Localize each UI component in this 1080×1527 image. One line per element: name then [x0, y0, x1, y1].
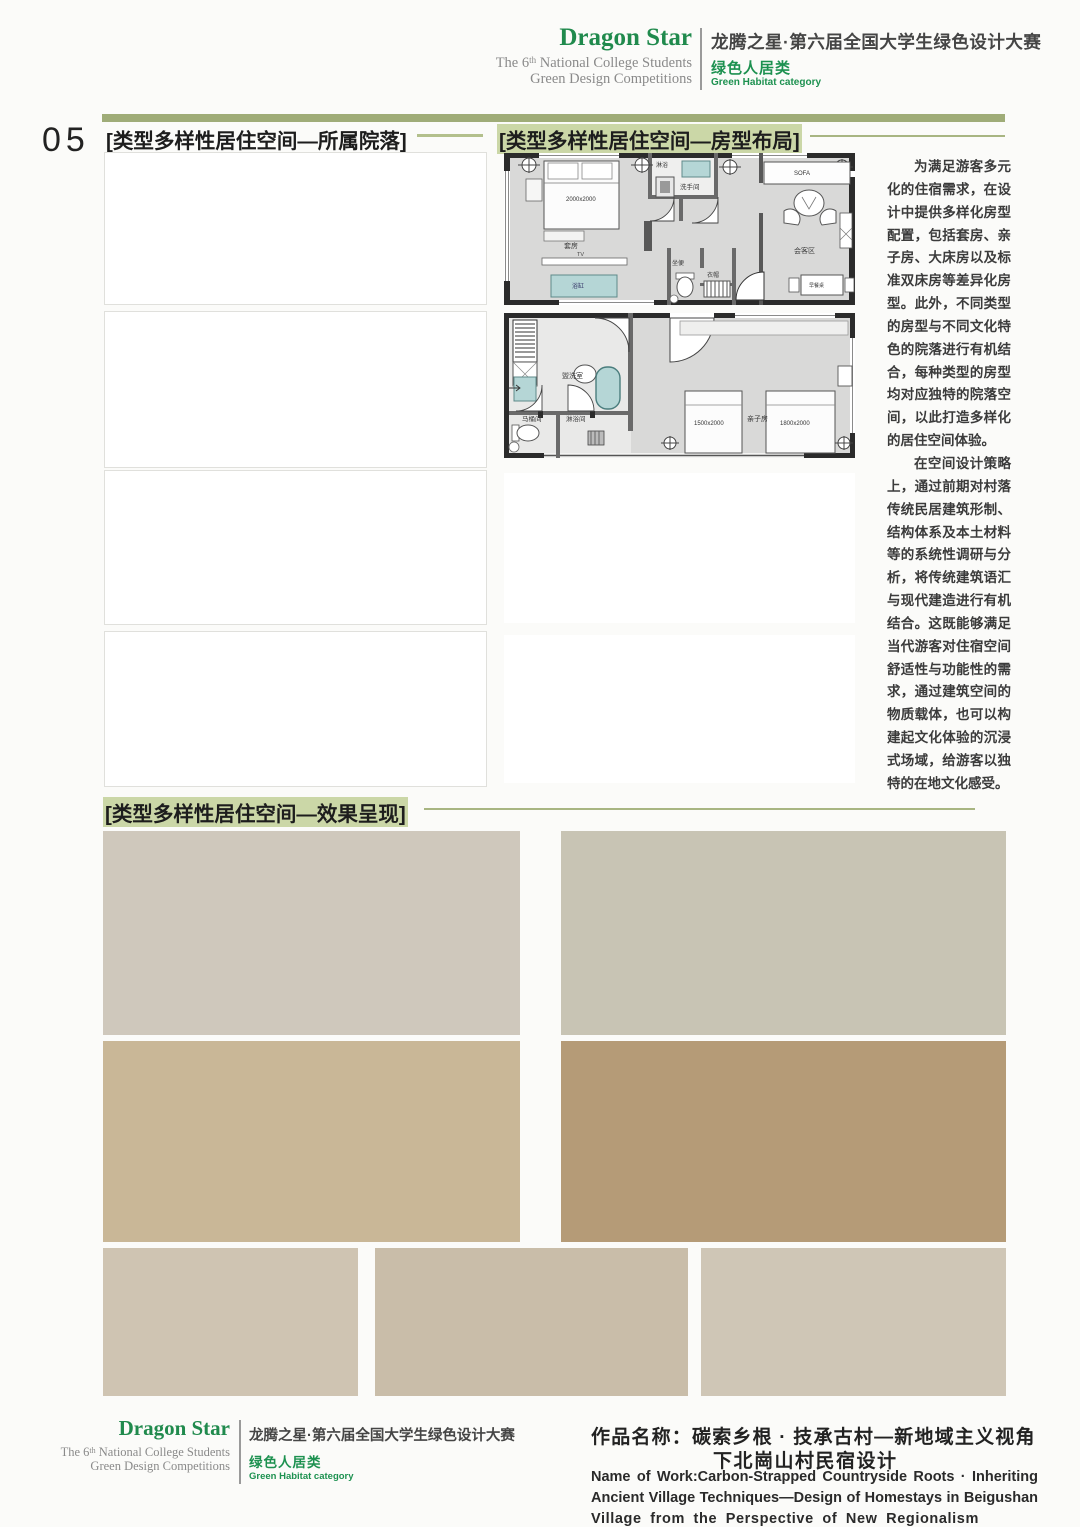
svg-text:早餐桌: 早餐桌	[809, 282, 824, 289]
svg-text:淋浴间: 淋浴间	[566, 414, 586, 423]
svg-text:亲子房: 亲子房	[747, 414, 768, 423]
svg-text:洗手间: 洗手间	[680, 182, 700, 191]
svg-text:会客区: 会客区	[794, 246, 815, 255]
svg-text:TV: TV	[577, 252, 584, 258]
svg-text:盥洗室: 盥洗室	[562, 371, 583, 380]
svg-text:2000x2000: 2000x2000	[566, 197, 596, 203]
svg-text:SOFA: SOFA	[794, 171, 810, 177]
svg-text:套房: 套房	[564, 241, 578, 250]
svg-text:淋浴: 淋浴	[656, 161, 668, 169]
svg-text:衣帽: 衣帽	[707, 271, 719, 279]
svg-text:马桶间: 马桶间	[522, 414, 542, 423]
svg-text:浴缸: 浴缸	[572, 282, 584, 290]
svg-text:1500x2000: 1500x2000	[694, 421, 724, 427]
svg-text:1800x2000: 1800x2000	[780, 421, 810, 427]
svg-text:坐便: 坐便	[672, 259, 684, 267]
